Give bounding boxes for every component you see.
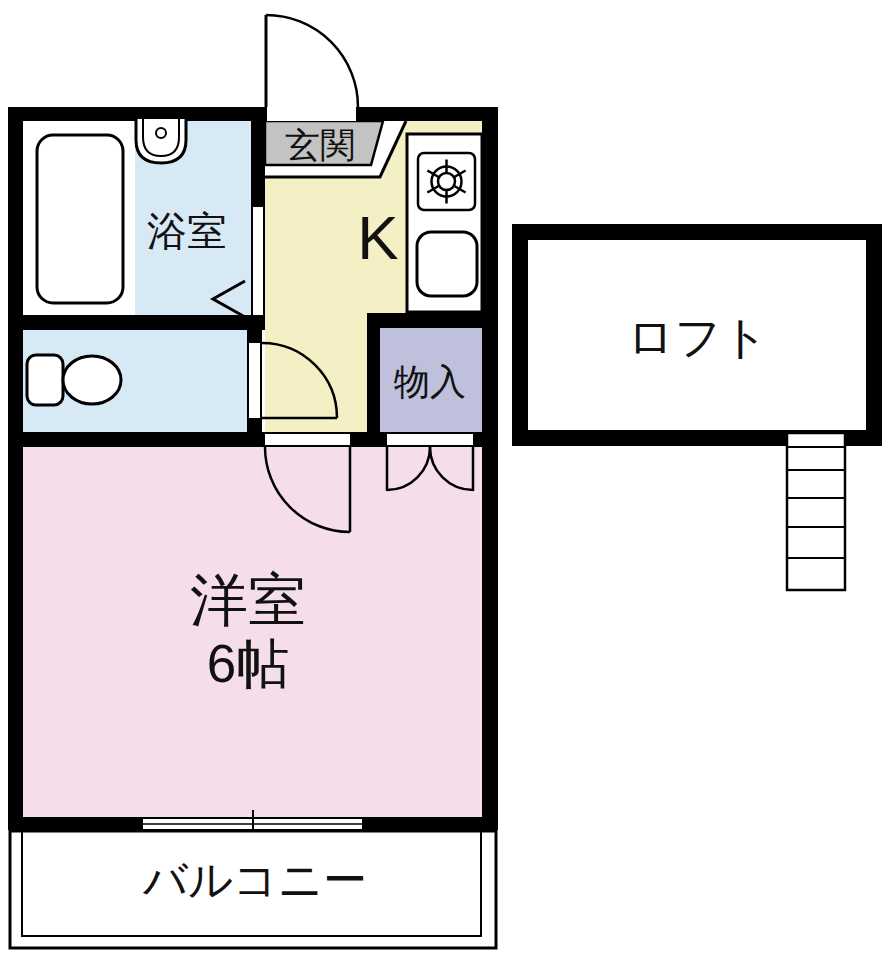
floor-plan: 玄関 浴室 K 物入 洋室 6帖 ロフト バルコニー <box>0 0 894 960</box>
wall-bottom-right <box>363 817 498 830</box>
loft-label: ロフト <box>627 311 768 363</box>
bathtub <box>37 135 123 303</box>
wall-top-left <box>8 107 265 121</box>
bathroom-label: 浴室 <box>147 209 227 253</box>
storage-label: 物入 <box>393 361 466 402</box>
wall-storage-left <box>367 313 380 432</box>
entrance-door <box>265 15 358 121</box>
wall-right <box>482 107 498 830</box>
kitchen-label: K <box>357 203 398 272</box>
basin-drain <box>156 128 166 138</box>
wall-storage-top <box>367 313 482 328</box>
storage-door-opening <box>387 432 473 447</box>
western-room-size-label: 6帖 <box>207 634 289 693</box>
entrance-door-opening <box>265 107 358 121</box>
entrance-door-swing-arc <box>266 15 358 107</box>
toilet-door-opening <box>247 343 262 418</box>
balcony-label: バルコニー <box>142 855 367 904</box>
kitchen-counter <box>407 134 482 312</box>
wall-bedroom-top-mid <box>350 432 387 447</box>
wall-top-right <box>358 107 498 121</box>
toilet-fixtures <box>27 355 121 405</box>
western-room-label: 洋室 <box>190 567 306 632</box>
wall-bedroom-top-left <box>8 432 265 447</box>
kitchen-sink <box>417 232 477 296</box>
toilet-bowl <box>63 356 121 404</box>
genkan-label: 玄関 <box>285 125 355 164</box>
wall-bedroom-top-right <box>473 432 482 447</box>
wall-toilet-right-upper <box>247 330 262 343</box>
western-room-door-opening <box>265 432 350 447</box>
bathroom-door-opening <box>251 207 265 315</box>
loft-ladder <box>787 433 845 590</box>
wall-bath-toilet <box>8 315 265 330</box>
western-room-floor <box>23 447 482 817</box>
wall-left <box>8 107 23 830</box>
wall-bottom-left <box>8 817 142 830</box>
floor-plan-page: 玄関 浴室 K 物入 洋室 6帖 ロフト バルコニー <box>0 0 894 960</box>
toilet-tank <box>27 355 63 405</box>
wall-bath-right-upper <box>251 121 265 207</box>
ladder-frame <box>787 433 845 590</box>
